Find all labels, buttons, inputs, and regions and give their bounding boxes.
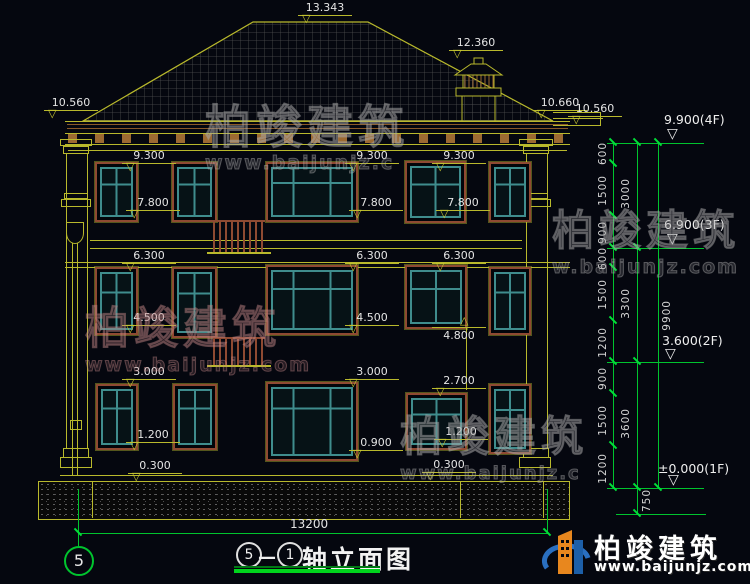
- dim-value: 600: [597, 142, 609, 165]
- logo-building: [558, 530, 572, 574]
- dim-value: 1500: [597, 175, 609, 206]
- pilaster-capital: [523, 146, 549, 154]
- floor-band: [90, 240, 522, 241]
- ground-line: [616, 514, 706, 515]
- elevation-value: 3.000: [356, 365, 388, 378]
- axis-bubble: 5: [64, 546, 94, 576]
- window-glass: [177, 167, 212, 217]
- watermark-brand: 柏竣建筑: [205, 104, 409, 150]
- marker-triangle-icon: ▽: [440, 209, 448, 219]
- title-dash: —: [258, 547, 276, 568]
- bottom-dim-value: 13200: [290, 517, 328, 531]
- elevation-value: 7.800: [447, 196, 479, 209]
- marker-triangle-icon: ▽: [353, 209, 361, 219]
- elevation-marker: 0.900▽: [349, 437, 403, 451]
- title-underline: [234, 569, 380, 573]
- elevation-value: 12.360: [457, 36, 496, 49]
- elevation-value: 7.800: [137, 196, 169, 209]
- elevation-marker: △4.800: [432, 327, 486, 341]
- marker-triangle-icon: ▽: [537, 109, 545, 119]
- plinth-joint: [460, 481, 461, 518]
- pilaster-capital: [519, 139, 553, 146]
- marker-triangle-icon: ▽: [453, 49, 461, 59]
- dim-chain-line: [637, 143, 638, 515]
- floor-level-label: 9.900(4F): [664, 112, 725, 127]
- marker-triangle-icon: ▽: [126, 162, 134, 172]
- elevation-marker: 6.300▽: [432, 250, 486, 264]
- elevation-value: 13.343: [306, 1, 345, 14]
- axis-line: [78, 489, 79, 546]
- elevation-value: 10.560: [576, 102, 615, 115]
- marker-triangle-icon: ▽: [349, 262, 357, 272]
- window-glass: [410, 270, 462, 324]
- level-line: [607, 362, 704, 363]
- watermark: 柏竣建筑 www.baijunjz.c: [205, 104, 409, 173]
- dim-value: 1500: [597, 279, 609, 310]
- dim-value: 1200: [597, 453, 609, 484]
- window-wide: [266, 382, 358, 461]
- marker-line: [432, 327, 486, 328]
- marker-triangle-icon: ▽: [132, 472, 140, 482]
- elevation-value: 4.800: [432, 330, 486, 341]
- pilaster-base: [60, 457, 92, 468]
- marker-triangle-icon: ▽: [302, 14, 310, 24]
- marker-triangle-icon: ▽: [436, 162, 444, 172]
- plinth-joint: [543, 481, 544, 518]
- elevation-value: 0.900: [360, 436, 392, 449]
- elevation-value: 9.300: [443, 149, 475, 162]
- dim-value: 1200: [597, 327, 609, 358]
- dim-chain-line: [658, 143, 659, 489]
- dim-chain-line: [613, 143, 614, 489]
- window-glass: [271, 387, 353, 456]
- dim-value: 750: [641, 489, 653, 512]
- elevation-value: 6.300: [133, 249, 165, 262]
- elevation-marker: 2.700▽: [432, 375, 486, 389]
- chimney-louver: [463, 75, 494, 88]
- marker-triangle-icon: ▽: [130, 209, 138, 219]
- window-glass: [494, 272, 526, 330]
- floor-triangle-icon: ▽: [665, 348, 676, 361]
- marker-triangle-icon: ▽: [436, 387, 444, 397]
- watermark-url: www.baijunjz.com: [85, 356, 311, 375]
- elevation-marker: 12.360▽: [449, 37, 503, 51]
- elevation-value: 2.700: [443, 374, 475, 387]
- chimney-finial: [474, 58, 483, 64]
- dim-value: 9900: [661, 300, 673, 331]
- window-glass: [178, 389, 212, 445]
- level-line: [607, 143, 704, 144]
- balcony-sill: [207, 252, 271, 254]
- marker-triangle-icon: ▽: [353, 449, 361, 459]
- plinth-hatch: [38, 481, 570, 520]
- brand-url: www.baijunjz.com: [594, 559, 750, 575]
- logo-tower: [574, 540, 583, 574]
- elevation-marker: 7.800▽: [436, 197, 490, 211]
- window-glass: [494, 167, 526, 217]
- dim-value: 3300: [620, 288, 632, 319]
- downspout-hopper: [66, 222, 84, 244]
- chimney-band: [456, 88, 501, 96]
- chimney-cap: [455, 64, 502, 75]
- downspout-bracket: [70, 420, 82, 430]
- window: [405, 265, 467, 329]
- elevation-marker: 1.200▽: [126, 429, 180, 443]
- dim-value: 3600: [620, 408, 632, 439]
- elevation-marker: 3.000▽: [345, 366, 399, 380]
- watermark: 柏竣建筑 www.baijunjz.com: [85, 306, 311, 375]
- window-glass: [271, 167, 353, 217]
- elevation-marker: 9.300▽: [432, 150, 486, 164]
- plinth-joint: [92, 481, 93, 518]
- window-narrow: [489, 162, 531, 222]
- downspout-pipe: [77, 243, 78, 475]
- watermark-url: www.baijunjz.c: [205, 154, 409, 173]
- title-axis-circle: 1: [277, 542, 303, 568]
- floor-triangle-icon: ▽: [668, 474, 679, 487]
- marker-triangle-icon: ▽: [126, 378, 134, 388]
- watermark-brand: 柏竣建筑: [85, 306, 311, 352]
- dim-value: 1500: [597, 405, 609, 436]
- window-narrow: [489, 267, 531, 335]
- elevation-marker: 9.300▽: [122, 150, 176, 164]
- marker-triangle-icon: ▽: [436, 262, 444, 272]
- elevation-marker: 6.300▽: [345, 250, 399, 264]
- floor-triangle-icon: ▽: [667, 128, 678, 141]
- watermark-brand: 柏竣建筑: [400, 414, 588, 460]
- elevation-value: 6.300: [443, 249, 475, 262]
- elevation-marker: 7.800▽: [126, 197, 180, 211]
- elevation-marker: 4.500▽: [345, 312, 399, 326]
- chimney-body: [462, 96, 495, 121]
- dim-value: 900: [597, 367, 609, 390]
- pilaster-capital: [63, 146, 89, 154]
- level-line: [607, 488, 704, 489]
- title-underline: [234, 566, 380, 568]
- elevation-marker: 6.300▽: [122, 250, 176, 264]
- cad-elevation-drawing: 13.343▽ 12.360▽ 10.560▽ 10.660▽ 10.560▽ …: [0, 0, 750, 584]
- brand-logo-icon: [540, 522, 592, 580]
- elevation-value: 4.500: [356, 311, 388, 324]
- watermark-url: w.baijunjz.com: [552, 258, 740, 277]
- elevation-marker: 13.343▽: [298, 2, 352, 16]
- elevation-marker: 0.300▽: [128, 460, 182, 474]
- marker-triangle-icon: △: [460, 316, 468, 326]
- pilaster-molding: [61, 199, 91, 207]
- elevation-value: 7.800: [360, 196, 392, 209]
- elevation-value: 9.300: [133, 149, 165, 162]
- bottom-dim-line: [78, 533, 548, 534]
- marker-triangle-icon: ▽: [572, 115, 580, 125]
- dim-value: 3000: [620, 178, 632, 209]
- marker-triangle-icon: ▽: [126, 262, 134, 272]
- watermark-brand: 柏竣建筑: [552, 208, 740, 254]
- watermark: 柏竣建筑 w.baijunjz.com: [552, 208, 740, 277]
- marker-triangle-icon: ▽: [349, 324, 357, 334]
- elevation-value: 10.560: [52, 96, 91, 109]
- elevation-value: 0.300: [139, 459, 171, 472]
- elevation-marker: 7.800▽: [349, 197, 403, 211]
- elevation-value: 1.200: [137, 428, 169, 441]
- pilaster-capital: [60, 139, 92, 146]
- elevation-marker: 10.560▽: [44, 97, 98, 111]
- watermark: 柏竣建筑 www.baijunjz.c: [400, 414, 588, 483]
- downspout-pipe: [72, 243, 73, 475]
- marker-triangle-icon: ▽: [48, 109, 56, 119]
- marker-triangle-icon: ▽: [130, 441, 138, 451]
- watermark-url: www.baijunjz.c: [400, 464, 588, 483]
- elevation-value: 6.300: [356, 249, 388, 262]
- balcony-railing: [213, 220, 265, 253]
- marker-triangle-icon: ▽: [349, 378, 357, 388]
- elevation-marker: 10.560▽: [568, 103, 622, 117]
